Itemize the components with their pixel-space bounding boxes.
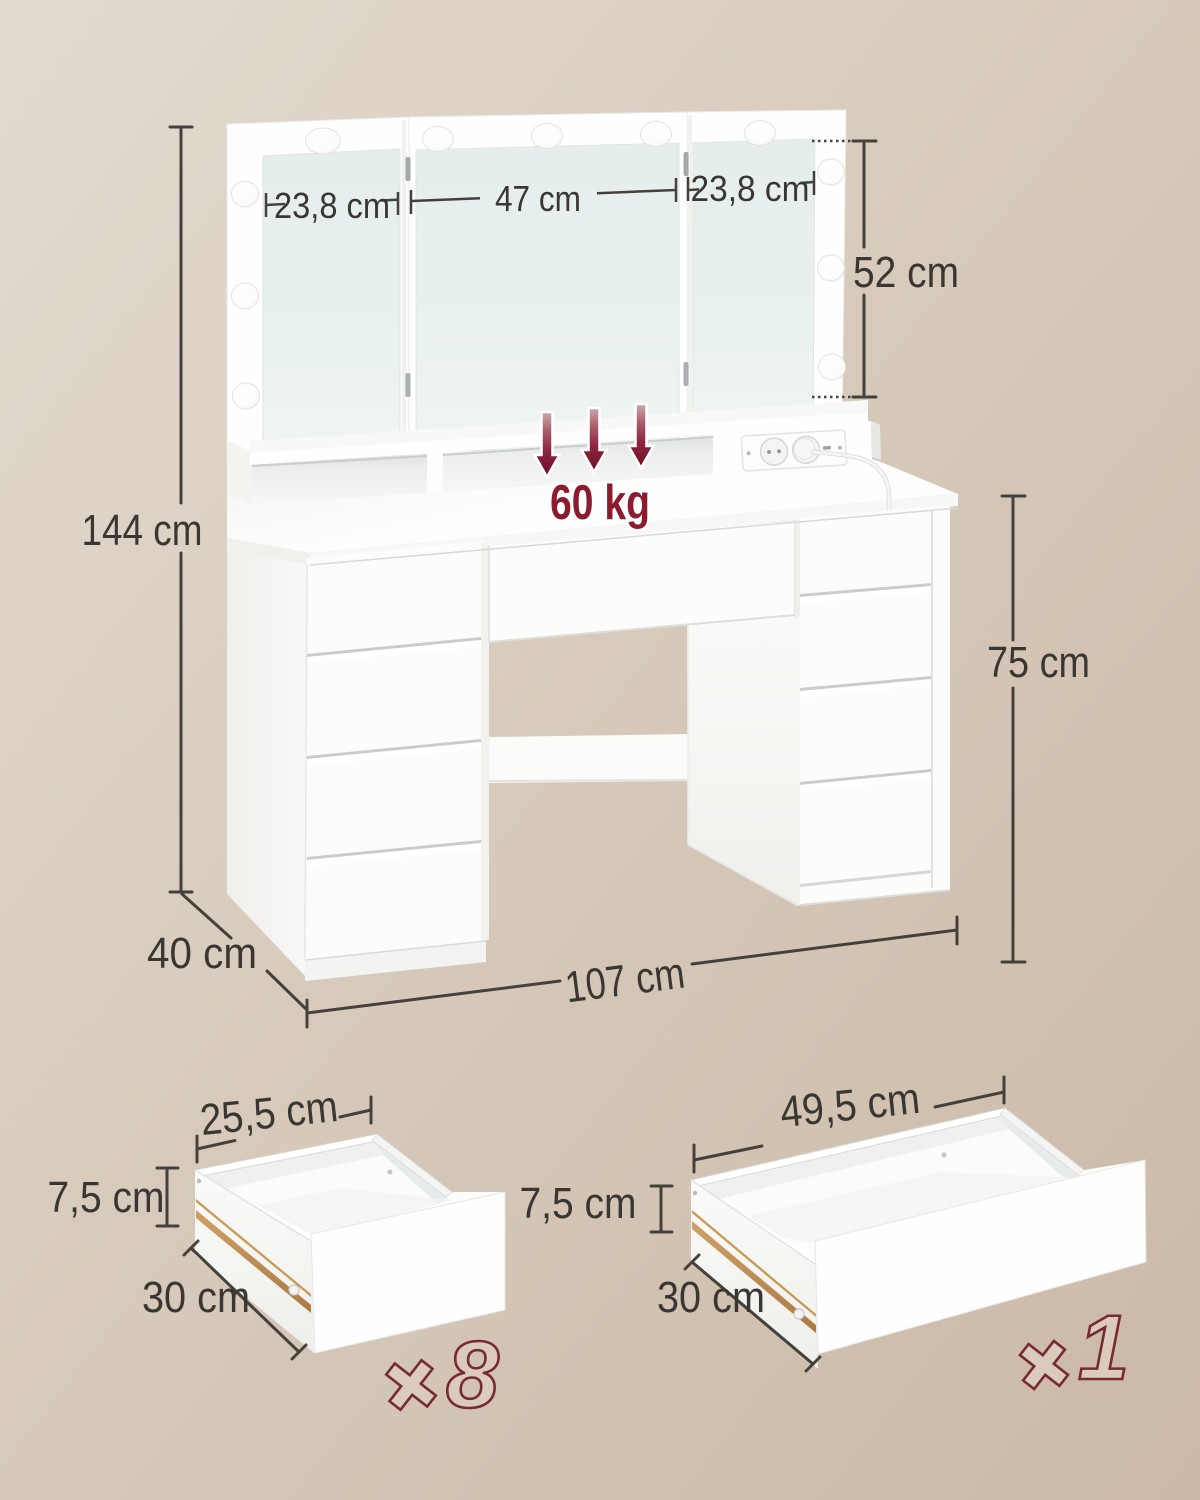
svg-text:60 kg: 60 kg bbox=[550, 476, 650, 530]
svg-text:1: 1 bbox=[1078, 1297, 1129, 1399]
svg-text:23,8 cm: 23,8 cm bbox=[691, 168, 810, 209]
svg-text:30 cm: 30 cm bbox=[657, 1273, 765, 1322]
svg-text:8: 8 bbox=[446, 1322, 499, 1428]
svg-text:47 cm: 47 cm bbox=[495, 178, 581, 219]
svg-text:52 cm: 52 cm bbox=[853, 248, 959, 297]
svg-text:40 cm: 40 cm bbox=[147, 929, 257, 978]
svg-text:75 cm: 75 cm bbox=[987, 638, 1090, 687]
svg-text:7,5 cm: 7,5 cm bbox=[520, 1179, 637, 1228]
svg-text:7,5 cm: 7,5 cm bbox=[48, 1173, 165, 1222]
svg-text:144 cm: 144 cm bbox=[82, 506, 203, 555]
svg-text:23,8 cm: 23,8 cm bbox=[274, 185, 390, 226]
svg-text:30 cm: 30 cm bbox=[142, 1273, 250, 1322]
